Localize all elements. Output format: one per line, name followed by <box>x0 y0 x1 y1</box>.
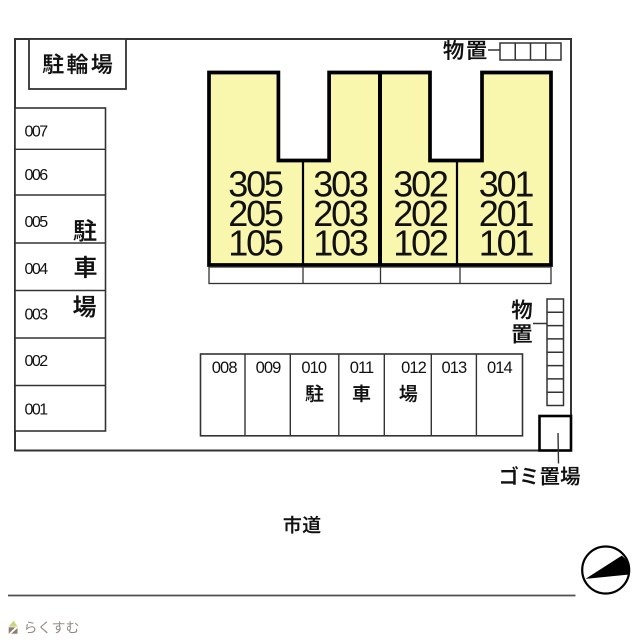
svg-text:101: 101 <box>479 223 534 264</box>
svg-text:012: 012 <box>401 359 427 377</box>
svg-text:011: 011 <box>350 359 374 377</box>
svg-text:010: 010 <box>301 359 327 377</box>
svg-text:004: 004 <box>25 261 49 278</box>
svg-text:005: 005 <box>25 214 49 231</box>
svg-text:007: 007 <box>25 123 49 140</box>
svg-text:105: 105 <box>228 223 283 264</box>
svg-text:009: 009 <box>256 359 282 377</box>
svg-text:014: 014 <box>487 359 513 377</box>
svg-text:103: 103 <box>313 223 368 264</box>
svg-text:002: 002 <box>25 353 49 370</box>
svg-text:003: 003 <box>25 307 49 324</box>
svg-text:102: 102 <box>393 223 448 264</box>
svg-text:001: 001 <box>25 401 49 418</box>
svg-text:013: 013 <box>441 359 467 377</box>
svg-text:008: 008 <box>212 359 238 377</box>
svg-text:006: 006 <box>25 167 49 184</box>
